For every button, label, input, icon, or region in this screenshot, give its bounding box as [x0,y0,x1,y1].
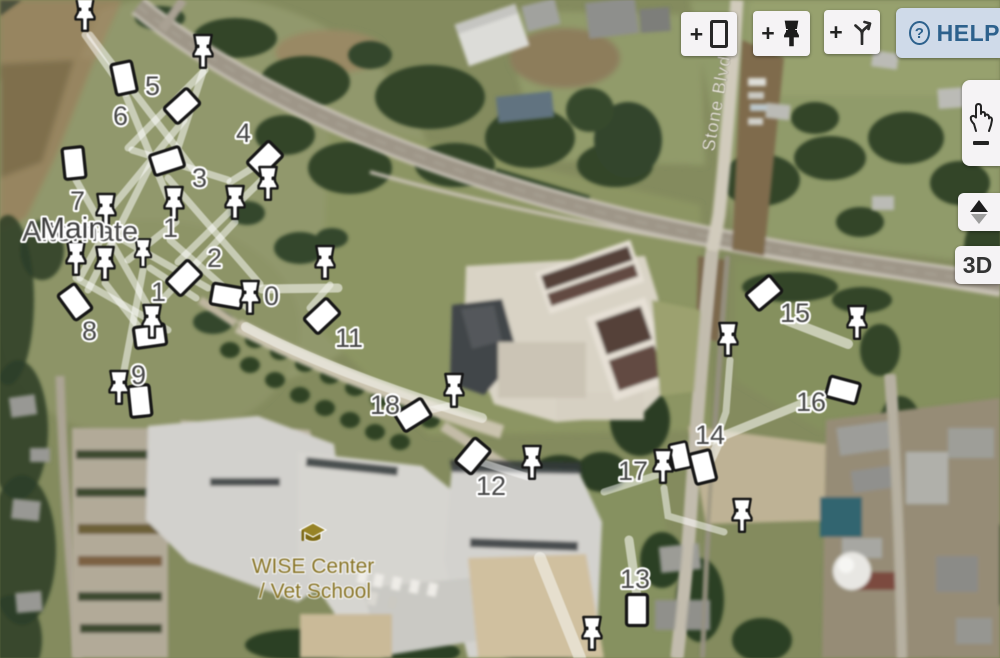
svg-text:14: 14 [695,420,725,450]
svg-text:18: 18 [370,390,400,420]
svg-text:8: 8 [82,316,97,346]
svg-text:2: 2 [207,243,222,273]
svg-text:1: 1 [151,277,166,307]
svg-text:6: 6 [113,101,128,131]
svg-text:13: 13 [620,564,650,594]
svg-text:3: 3 [192,163,207,193]
svg-text:1: 1 [163,213,178,243]
svg-text:Main: Main [40,212,105,245]
svg-text:9: 9 [131,360,146,390]
svg-text:16: 16 [796,387,826,417]
svg-text:0: 0 [264,281,279,311]
svg-text:15: 15 [780,298,810,328]
svg-text:4: 4 [236,118,251,148]
svg-text:5: 5 [145,71,160,101]
svg-text:/ Vet School: / Vet School [259,580,371,603]
svg-text:11: 11 [335,323,363,353]
svg-text:WISE Center: WISE Center [252,555,375,578]
svg-text:12: 12 [476,471,506,501]
svg-text:17: 17 [618,456,648,486]
